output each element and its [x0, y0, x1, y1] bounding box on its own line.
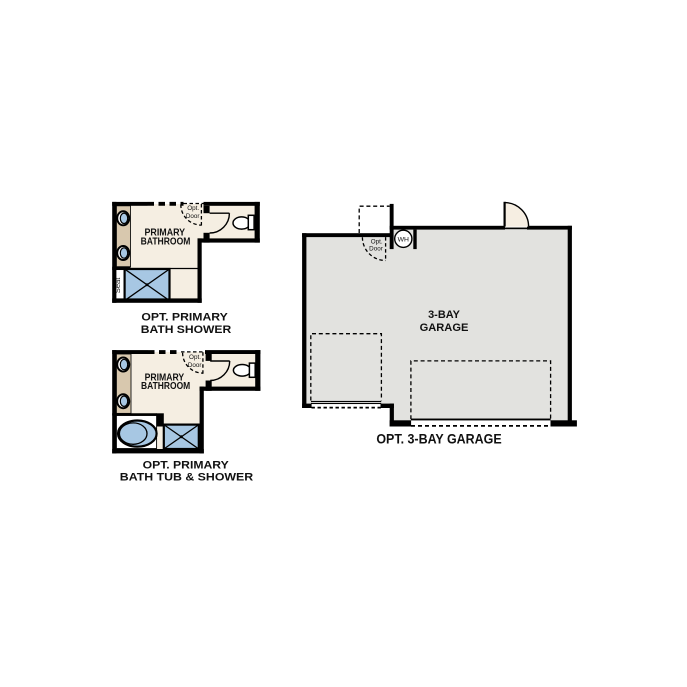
svg-text:BATHROOM: BATHROOM [141, 381, 190, 392]
svg-text:Opt.: Opt. [189, 354, 201, 361]
svg-text:BATH SHOWER: BATH SHOWER [141, 324, 232, 336]
svg-text:Door: Door [186, 213, 200, 220]
svg-text:OPT. 3-BAY GARAGE: OPT. 3-BAY GARAGE [376, 432, 501, 447]
svg-text:GARAGE: GARAGE [420, 322, 469, 334]
svg-text:OPT. PRIMARY: OPT. PRIMARY [141, 312, 228, 324]
svg-text:3-BAY: 3-BAY [428, 309, 460, 321]
svg-text:WH: WH [398, 236, 409, 243]
svg-text:Opt.: Opt. [371, 239, 383, 246]
svg-text:Opt.: Opt. [187, 205, 199, 212]
svg-text:Door: Door [188, 362, 202, 369]
svg-text:BATHROOM: BATHROOM [141, 237, 191, 248]
svg-text:BATH TUB & SHOWER: BATH TUB & SHOWER [120, 471, 253, 483]
svg-text:Door: Door [369, 246, 383, 253]
svg-text:OPT. PRIMARY: OPT. PRIMARY [143, 460, 230, 472]
